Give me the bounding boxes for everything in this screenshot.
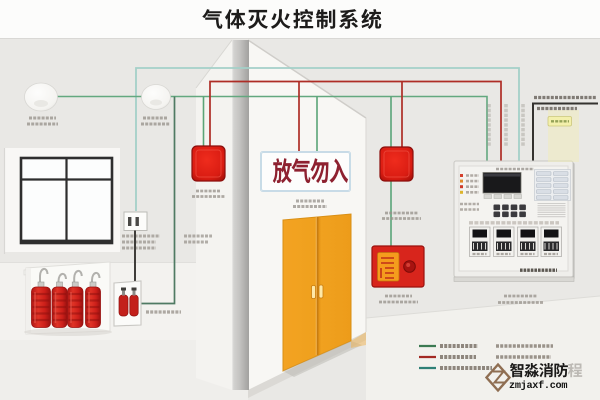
svg-text:zmjaxf.com: zmjaxf.com (509, 380, 567, 392)
